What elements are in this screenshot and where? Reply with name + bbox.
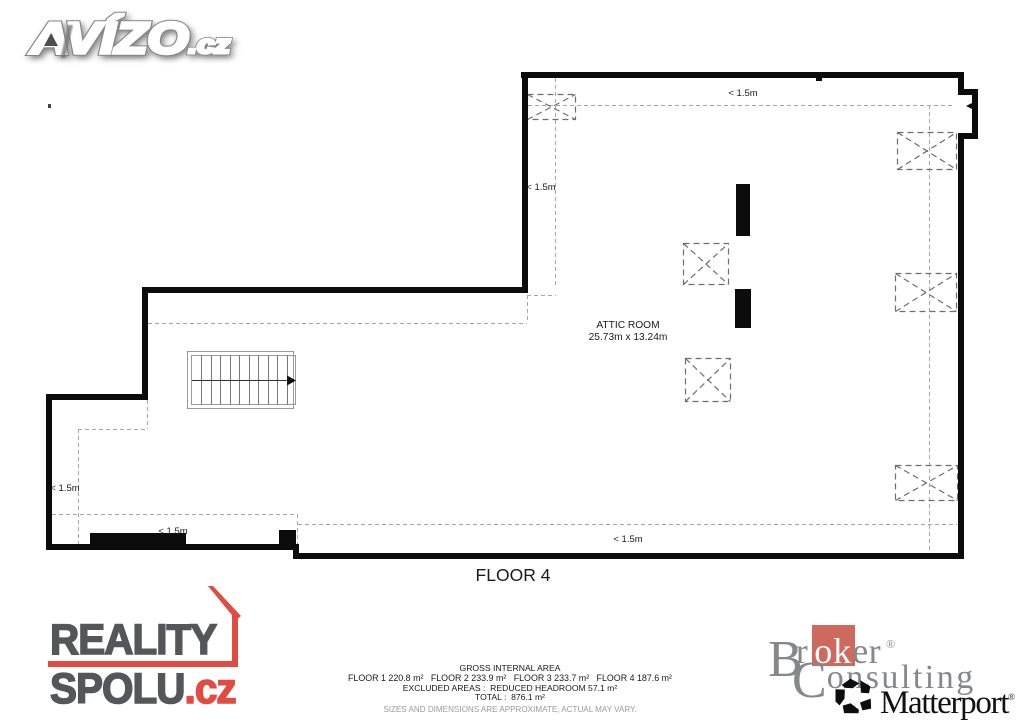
svg-text:< 1.5m: < 1.5m bbox=[50, 483, 79, 494]
svg-text:< 1.5m: < 1.5m bbox=[158, 526, 187, 537]
svg-text:FLOOR 4: FLOOR 4 bbox=[476, 565, 551, 585]
svg-text:GROSS INTERNAL AREA: GROSS INTERNAL AREA bbox=[460, 663, 561, 673]
svg-text:FLOOR 1 220.8 m² FLOOR 2 233: FLOOR 1 220.8 m² FLOOR 2 233.9 m² FLOOR … bbox=[348, 673, 672, 683]
svg-text:< 1.5m: < 1.5m bbox=[613, 534, 642, 545]
svg-text:< 1.5m: < 1.5m bbox=[526, 182, 555, 193]
svg-text:SIZES AND DIMENSIONS ARE APPRO: SIZES AND DIMENSIONS ARE APPROXIMATE, AC… bbox=[383, 705, 636, 714]
svg-text:ATTIC ROOM: ATTIC ROOM bbox=[596, 320, 659, 331]
svg-text:25.73m x 13.24m: 25.73m x 13.24m bbox=[589, 332, 668, 343]
svg-text:< 1.5m: < 1.5m bbox=[728, 88, 757, 99]
svg-text:TOTAL : 876.1 m²: TOTAL : 876.1 m² bbox=[475, 692, 545, 702]
